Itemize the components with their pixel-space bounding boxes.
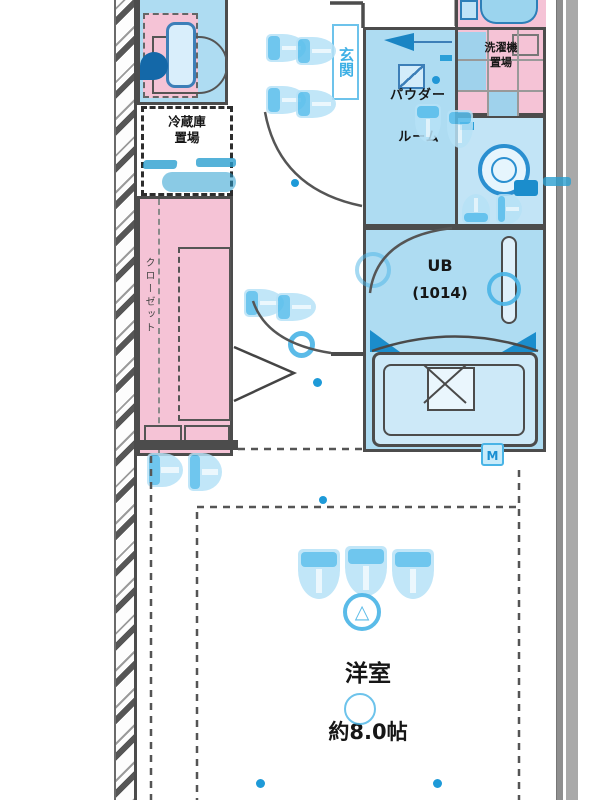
washer-label-line2: 置場: [463, 55, 539, 70]
watermark-text-blur: [162, 172, 236, 192]
watermark-icon: [345, 546, 387, 596]
kitchen-area: [137, 0, 228, 105]
watermark-ring: [355, 252, 391, 288]
floorplan: 冷蔵庫 置場 PS クローゼット パウダー ルーム: [0, 0, 600, 800]
tub-wedge-left: [370, 330, 400, 352]
unit-bath-label-line1: UB: [405, 256, 475, 275]
watermark-dot: [291, 179, 299, 187]
washer-label-line1: 洗濯機: [463, 40, 539, 55]
watermark-icon: [296, 90, 336, 118]
counter-tick-1: [440, 55, 452, 61]
exterior-wall-right: [556, 0, 578, 800]
refrigerator-label-line1: 冷蔵庫: [144, 114, 230, 130]
toilet-tank: [460, 0, 478, 20]
watermark-text-blur: [142, 160, 177, 169]
washbasin-dot: [432, 76, 440, 84]
watermark-logo-icon: △: [343, 593, 381, 631]
watermark-ring: [487, 272, 521, 306]
sink-faucet: [514, 180, 538, 196]
watermark-dot: [313, 378, 322, 387]
entrance-label: 玄関: [332, 24, 359, 100]
powder-room-label-line1: パウダー: [372, 84, 464, 103]
watermark-icon: [462, 194, 490, 224]
watermark-icon: [392, 549, 434, 599]
toilet-icon: [480, 0, 538, 24]
tub-wedge-right: [502, 332, 536, 352]
closet-divider: [158, 199, 160, 453]
watermark-icon: [298, 549, 340, 599]
watermark-dot: [256, 779, 265, 788]
kitchen-sink: [166, 22, 196, 88]
bathtub-drain-square: [427, 367, 475, 411]
kitchen-faucet-icon: [140, 52, 168, 80]
sink-bowl-inner: [491, 157, 517, 183]
watermark-dot: [319, 496, 327, 504]
watermark-text-blur: [196, 158, 236, 167]
refrigerator-label-line2: 置場: [144, 130, 230, 146]
washer-cell-3: [488, 92, 518, 117]
closet: クローゼット: [137, 196, 233, 456]
wall-stub: [136, 440, 238, 450]
watermark-icon: [276, 293, 316, 321]
closet-label: クローゼット: [141, 257, 156, 437]
outlet-badge-label: M: [487, 449, 499, 463]
watermark-ring: [288, 331, 315, 358]
outlet-badge: M: [481, 443, 504, 466]
watermark-icon: [188, 453, 222, 491]
western-room-name: 洋室: [318, 654, 418, 688]
watermark-icon: [296, 37, 336, 65]
unit-bath-label-line2: (1014): [398, 284, 482, 302]
watermark-dot: [433, 779, 442, 788]
watermark-text-blur: [543, 177, 571, 186]
watermark-ring: [344, 693, 376, 725]
washer-space: 洗濯機 置場: [455, 27, 546, 116]
closet-inner-box: [178, 247, 231, 421]
bathtub: [372, 352, 538, 447]
exterior-wall-left: [114, 0, 137, 800]
washer-grid-h2: [458, 90, 543, 92]
watermark-icon: [147, 453, 183, 487]
toilet-area: [455, 0, 546, 27]
